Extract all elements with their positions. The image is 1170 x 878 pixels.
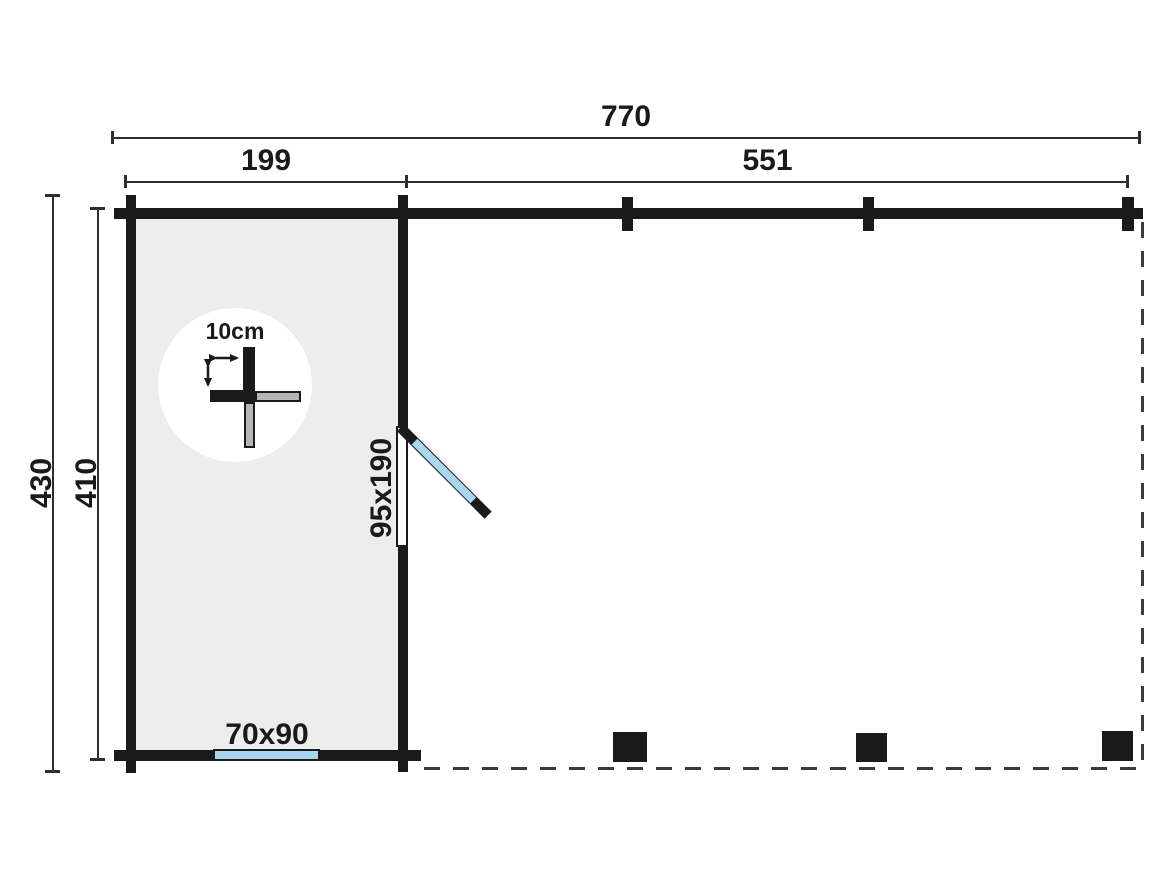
- canopy-post-1: [613, 732, 647, 762]
- overall-depth-dimension-line: [52, 195, 54, 773]
- overall-depth-dimension-cap-top: [45, 194, 60, 197]
- floor-plan-canvas: 770 199 551 430 410 70x90 95x190 10cm: [0, 0, 1170, 878]
- wall-partition-upper: [398, 195, 408, 427]
- door-leaf-tip-cap: [470, 497, 492, 519]
- right-section-width-dimension-tick-right: [1126, 175, 1129, 188]
- wall-thickness-label: 10cm: [185, 318, 285, 344]
- left-section-width-dimension-label: 199: [125, 143, 407, 179]
- canopy-post-2: [856, 733, 887, 762]
- wall-partition-lower: [398, 547, 408, 772]
- overall-width-dimension-tick-left: [111, 131, 114, 144]
- right-section-width-dimension-label: 551: [407, 143, 1128, 179]
- top-wall-post-mark-1: [622, 197, 633, 231]
- overall-depth-dimension-label: 430: [22, 443, 62, 523]
- overall-width-dimension-line: [112, 137, 1140, 139]
- inner-depth-dimension-cap-top: [90, 207, 105, 210]
- log-section-gray-horizontal: [255, 391, 301, 402]
- door-leaf: [397, 424, 492, 519]
- inner-depth-dimension-label: 410: [67, 443, 107, 523]
- inner-depth-dimension-cap-bottom: [90, 758, 105, 761]
- canopy-post-3: [1102, 731, 1133, 761]
- window-size-label: 70x90: [197, 719, 337, 751]
- overall-width-dimension-label: 770: [112, 99, 1140, 135]
- overall-depth-dimension-cap-bottom: [45, 770, 60, 773]
- top-wall-post-mark-end: [1122, 197, 1134, 231]
- log-section-black-horizontal: [210, 390, 255, 402]
- overall-width-dimension-tick-right: [1138, 131, 1141, 144]
- room-floor-area: [135, 219, 399, 751]
- left-section-width-dimension-line: [125, 181, 407, 183]
- inner-depth-dimension-line: [97, 208, 99, 761]
- left-section-width-dimension-tick-left: [124, 175, 127, 188]
- door-size-label: 95x190: [362, 403, 402, 573]
- log-section-gray-vertical: [244, 402, 255, 448]
- right-section-width-dimension-line: [407, 181, 1128, 183]
- wall-left: [126, 195, 136, 773]
- door-leaf-glass: [411, 438, 477, 504]
- top-wall-post-mark-2: [863, 197, 874, 231]
